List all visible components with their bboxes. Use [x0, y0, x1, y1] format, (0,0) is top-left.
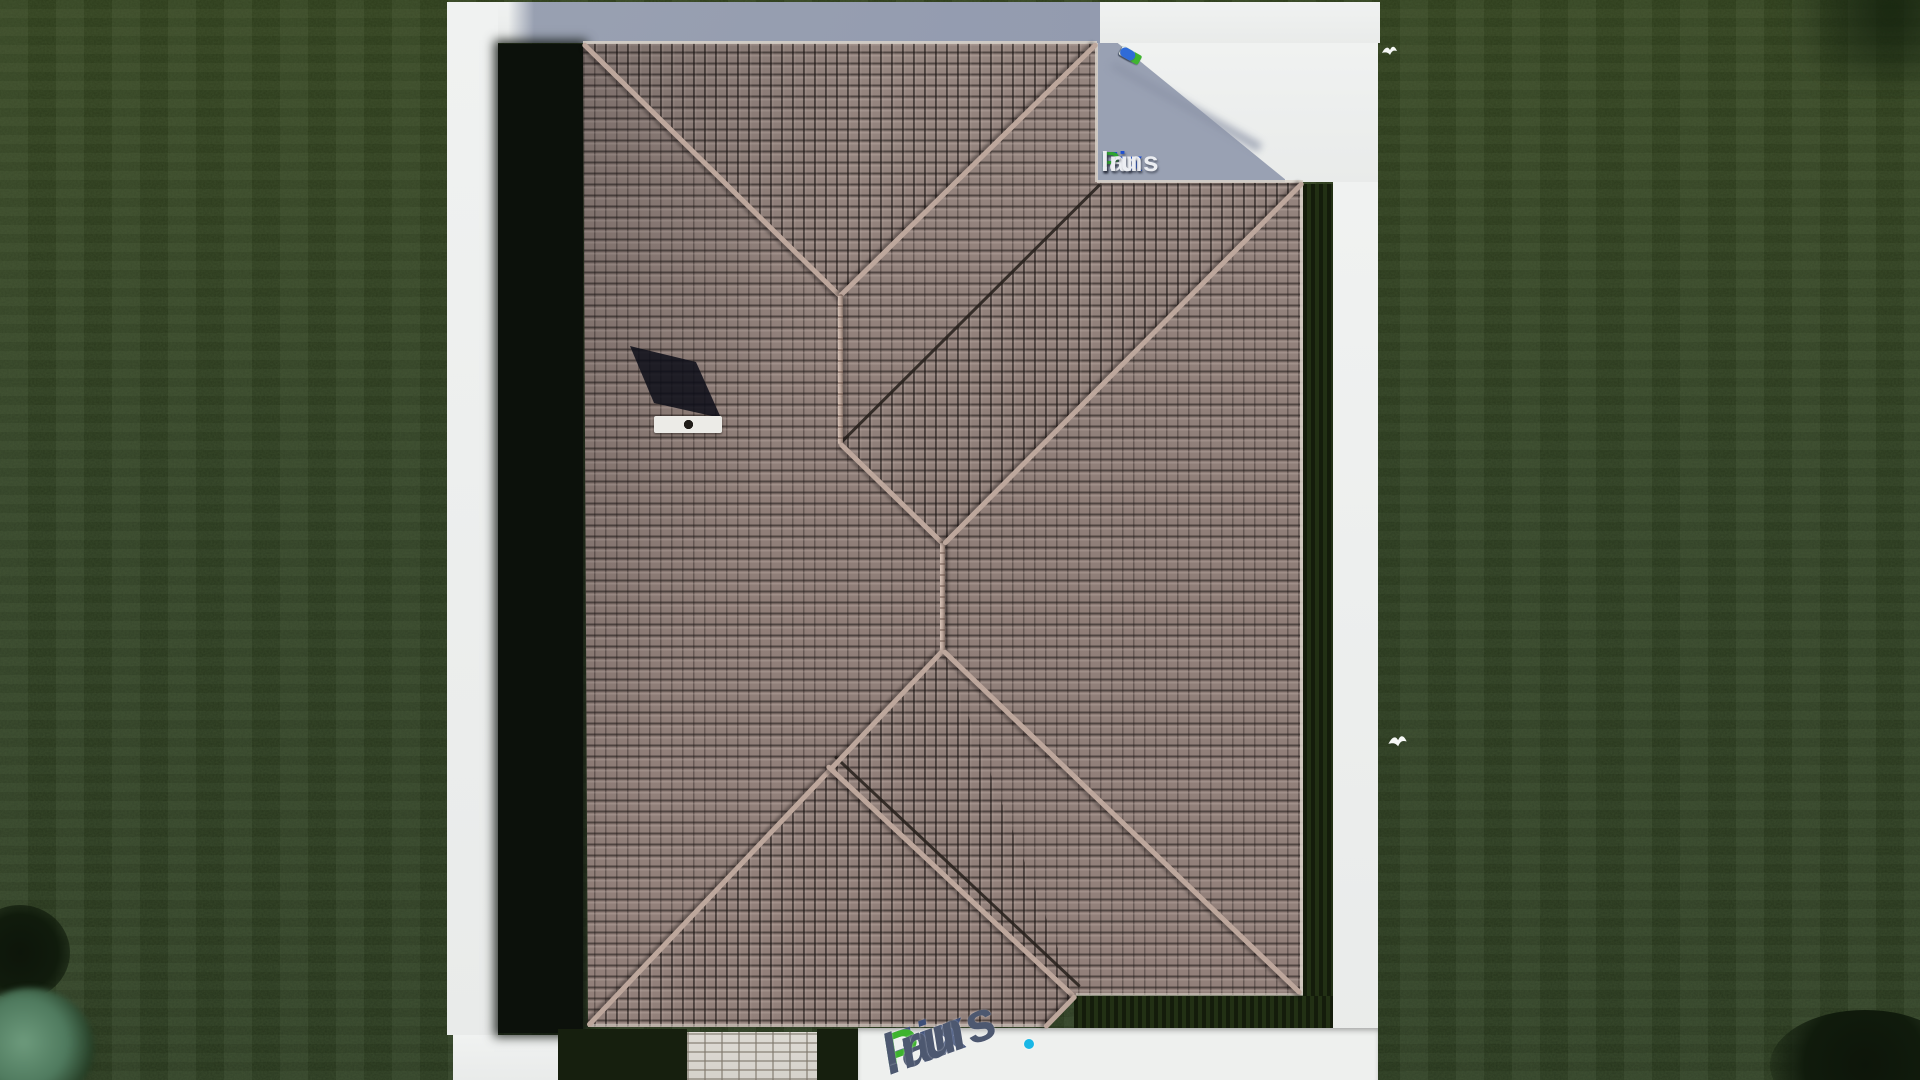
fascia-extension-top — [1097, 180, 1303, 183]
paver-walkway — [687, 1032, 817, 1080]
grass-below-eave-left — [558, 1029, 687, 1080]
ridge-north — [838, 294, 843, 445]
logo-text-ru: .ru — [1101, 146, 1138, 178]
fascia-right-upper — [1095, 43, 1098, 182]
logo-cyan-dot — [1024, 1039, 1034, 1049]
bird-icon — [1387, 733, 1408, 750]
hedge-right-strip — [1303, 184, 1333, 998]
path-left-strip — [447, 2, 498, 1035]
chimney-pot — [684, 420, 693, 429]
house-shadow-on-grass-left — [498, 44, 583, 1033]
fascia-top — [583, 41, 1097, 44]
ridge-south — [940, 541, 945, 652]
fascia-extension-right — [1300, 182, 1303, 995]
fascia-extension-bottom — [1076, 993, 1303, 996]
aerial-render: FixPlans.ru FixPlans.ru — [0, 0, 1920, 1080]
path-right-strip — [1333, 182, 1378, 1080]
hedge-bottom-right — [1074, 996, 1333, 1032]
bird-icon — [1381, 44, 1398, 58]
grass-below-eave-mid — [817, 1029, 858, 1080]
chimney — [654, 416, 722, 433]
house-shadow-on-top-path — [508, 2, 1100, 43]
path-bottom-left — [453, 1035, 558, 1080]
